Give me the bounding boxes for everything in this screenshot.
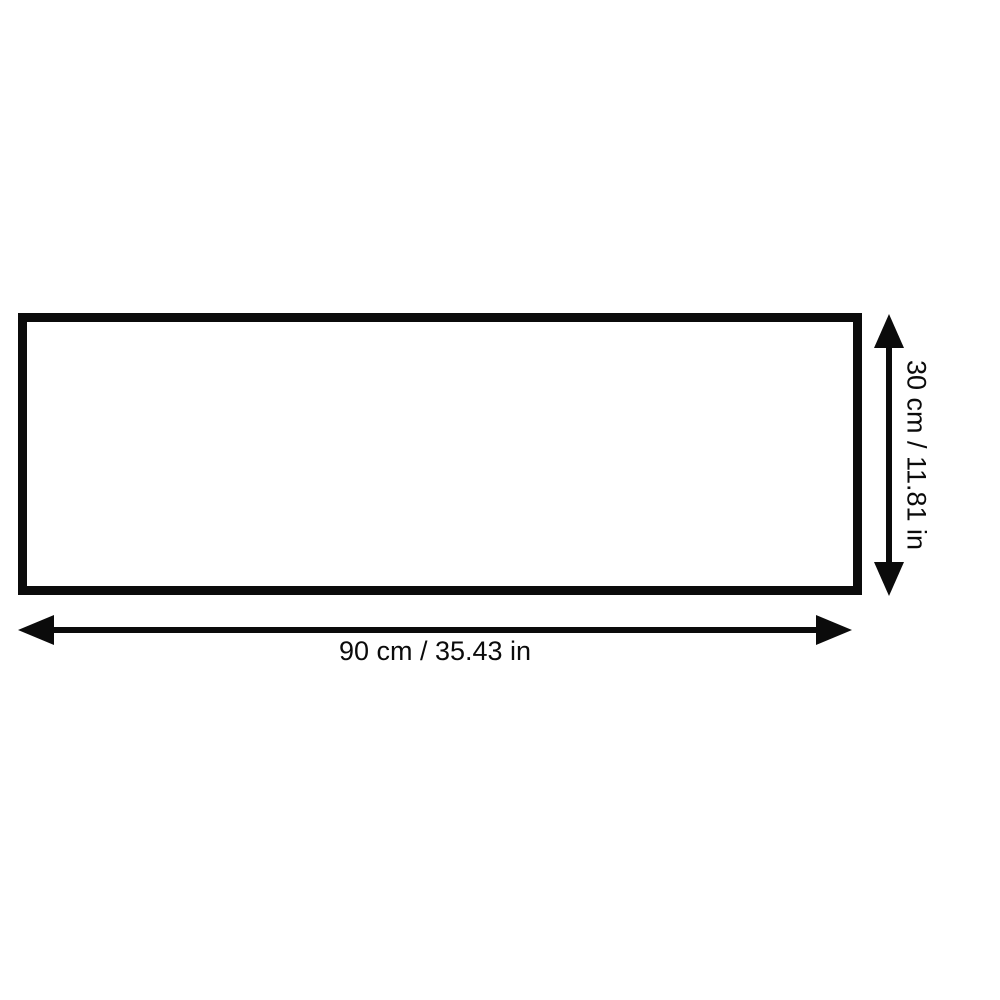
width-dimension-label: 90 cm / 35.43 in [18,638,852,665]
dimension-diagram: 30 cm / 11.81 in 90 cm / 35.43 in [0,0,1000,1000]
height-dimension-label: 30 cm / 11.81 in [903,360,930,550]
dimension-rectangle [18,313,862,595]
